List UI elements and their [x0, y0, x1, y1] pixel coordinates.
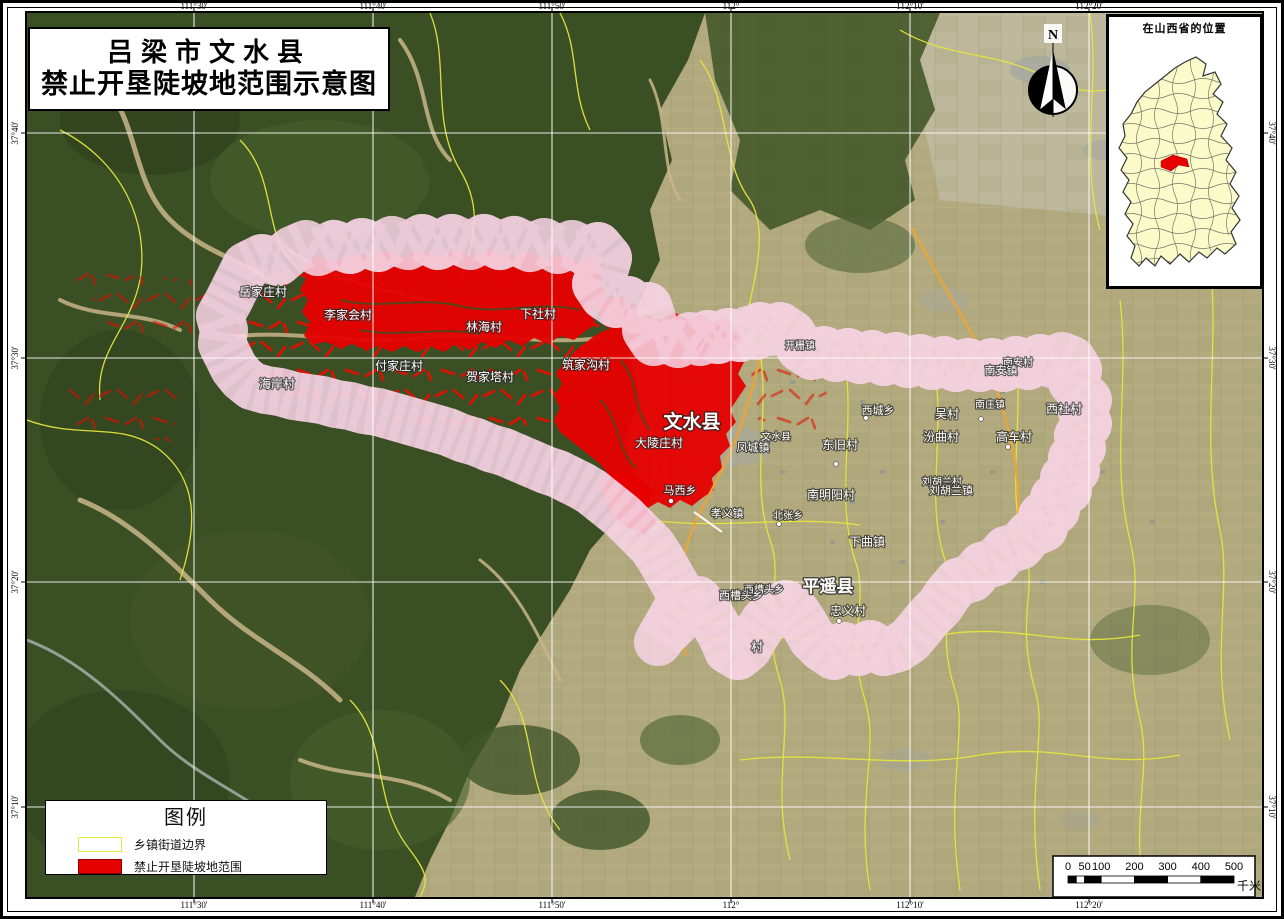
township-boundary-swatch — [78, 837, 122, 852]
place-label: 大陵庄村 — [635, 435, 683, 450]
place-label: 西槽头乡 — [719, 589, 763, 602]
place-label: 文水县 — [663, 410, 720, 433]
scale-segment — [1101, 876, 1134, 883]
place-label: 筑家沟村 — [562, 357, 610, 372]
place-label: 海岸村 — [259, 376, 295, 391]
longitude-label-top: 111°30' — [180, 1, 207, 11]
place-label: 东旧村 — [822, 438, 858, 452]
scale-tick-label: 50 — [1078, 861, 1090, 873]
village-dot — [669, 499, 674, 504]
map-title-line1: 吕梁市文水县 — [107, 38, 311, 68]
village-dot — [837, 619, 842, 624]
inset-title: 在山西省的位置 — [1109, 21, 1260, 37]
north-arrow: N — [1018, 22, 1088, 122]
prohibited-zone-swatch — [78, 859, 122, 874]
latitude-label-right: 37°30' — [1267, 346, 1277, 369]
longitude-label-bottom: 111°40' — [359, 900, 386, 910]
village-dot — [834, 462, 839, 467]
inset-location-map: 在山西省的位置 — [1106, 14, 1263, 289]
place-label: 刘胡兰镇 — [929, 483, 973, 497]
place-label: 贺家塔村 — [466, 369, 514, 384]
longitude-label-bottom: 111°30' — [180, 900, 207, 910]
place-label: 忠义村 — [830, 604, 866, 618]
place-label: 平遥县 — [803, 576, 854, 596]
map-sheet: 岳家庄村李家会村林海村下社村海岸村付家庄村贺家塔村筑家沟村文水县大陵庄村文水县凤… — [0, 0, 1284, 919]
place-label: 李家会村 — [324, 307, 372, 322]
longitude-label-top: 111°40' — [359, 1, 386, 11]
mountains-north — [705, 13, 940, 230]
longitude-label-top: 112°10' — [896, 1, 923, 11]
longitude-label-bottom: 112° — [723, 900, 740, 910]
place-label: 北张乡 — [773, 510, 803, 522]
place-label: 南庄镇 — [975, 398, 1005, 411]
legend-item-prohibited: 禁止开垦陡坡地范围 — [78, 858, 316, 875]
longitude-label-top: 112° — [723, 1, 740, 11]
place-label: 付家庄村 — [375, 358, 423, 373]
place-label: 开栅镇 — [785, 339, 815, 352]
map-canvas: 岳家庄村李家会村林海村下社村海岸村付家庄村贺家塔村筑家沟村文水县大陵庄村文水县凤… — [0, 0, 1284, 919]
place-label: 下社村 — [520, 306, 556, 321]
scale-tick-label: 500 — [1225, 861, 1243, 873]
legend-item-label: 禁止开垦陡坡地范围 — [134, 858, 242, 875]
place-label: 凤城镇 — [737, 440, 770, 454]
latitude-label-right: 37°40' — [1267, 121, 1277, 144]
place-label: 南明阳村 — [807, 487, 855, 502]
place-label: 孝义镇 — [711, 506, 744, 520]
place-label: 西社村 — [1046, 401, 1082, 416]
map-title-line2: 禁止开垦陡坡地范围示意图 — [41, 68, 377, 100]
latitude-label-left: 37°30' — [10, 346, 20, 369]
place-label: 岳家庄村 — [239, 284, 287, 299]
scale-segment — [1134, 876, 1167, 883]
place-label: 下曲镇 — [849, 535, 885, 549]
village-dot — [1006, 445, 1011, 450]
place-label: 马西乡 — [664, 484, 697, 497]
longitude-label-top: 112°20' — [1075, 1, 1102, 11]
scale-segment — [1168, 876, 1201, 883]
latitude-label-right: 37°10' — [1267, 795, 1277, 818]
place-label: 林海村 — [466, 319, 502, 334]
scale-segment — [1076, 876, 1084, 883]
legend-item-township: 乡镇街道边界 — [78, 836, 316, 853]
longitude-label-top: 111°50' — [538, 1, 565, 11]
longitude-label-bottom: 112°10' — [896, 900, 923, 910]
latitude-label-right: 37°20' — [1267, 570, 1277, 593]
place-label: 高车村 — [996, 429, 1032, 444]
scale-bar: 050100200300400500千米 — [1053, 856, 1261, 897]
legend: 图例 乡镇街道边界 禁止开垦陡坡地范围 — [45, 800, 327, 875]
scale-tick-label: 300 — [1158, 861, 1176, 873]
scale-segment — [1201, 876, 1234, 883]
scale-tick-label: 400 — [1192, 861, 1210, 873]
place-label: 南安镇 — [985, 363, 1018, 377]
place-label: 西城乡 — [862, 404, 895, 417]
place-label: 村 — [751, 640, 763, 654]
scale-tick-label: 200 — [1125, 861, 1143, 873]
place-label: 吴村 — [935, 407, 959, 421]
scale-tick-label: 0 — [1065, 861, 1071, 873]
place-label: 汾曲村 — [923, 430, 959, 444]
north-label: N — [1048, 28, 1058, 43]
latitude-label-left: 37°20' — [10, 570, 20, 593]
village-dot — [979, 417, 984, 422]
scale-segment — [1085, 876, 1102, 883]
inset-map-canvas — [1109, 37, 1260, 285]
latitude-label-left: 37°10' — [10, 795, 20, 818]
legend-title: 图例 — [56, 805, 316, 831]
longitude-label-bottom: 112°20' — [1075, 900, 1102, 910]
longitude-label-bottom: 111°50' — [538, 900, 565, 910]
map-title-box: 吕梁市文水县 禁止开垦陡坡地范围示意图 — [28, 27, 390, 111]
legend-item-label: 乡镇街道边界 — [134, 836, 206, 853]
latitude-label-left: 37°40' — [10, 121, 20, 144]
map-body: 岳家庄村李家会村林海村下社村海岸村付家庄村贺家塔村筑家沟村文水县大陵庄村文水县凤… — [10, 13, 1262, 897]
village-dot — [777, 522, 782, 527]
scale-segment — [1068, 876, 1076, 883]
scale-tick-label: 100 — [1092, 861, 1110, 873]
scale-unit-label: 千米 — [1237, 879, 1261, 893]
